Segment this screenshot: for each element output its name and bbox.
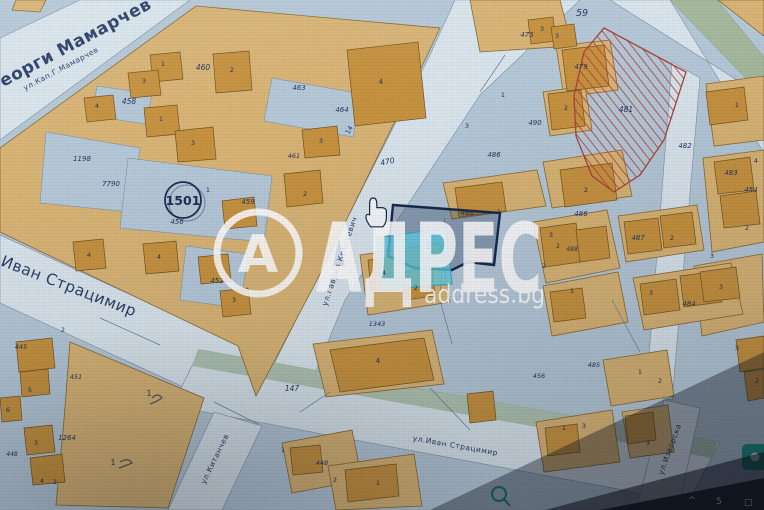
parcel-number-label: 4	[376, 357, 381, 365]
building-polygon[interactable]	[175, 127, 216, 162]
wat-logo-letter: А	[238, 225, 278, 285]
parcel-polygon[interactable]	[12, 0, 46, 12]
parcel-number-label: 448	[6, 451, 18, 458]
parcel-number-label: 5	[28, 386, 32, 394]
parcel-number-label: 2	[333, 476, 337, 484]
parcel-number-label: 460	[196, 63, 211, 72]
parcel-number-label: 484	[682, 300, 695, 308]
parcel-number-label: 1	[111, 458, 116, 467]
parcel-number-label: 1198	[73, 155, 91, 163]
building-polygon[interactable]	[540, 223, 581, 267]
wat-domain-text: address.bg	[424, 280, 545, 310]
parcel-number-label: 1	[501, 91, 505, 99]
parcel-number-label: 483	[724, 169, 737, 177]
building-polygon[interactable]	[345, 464, 399, 502]
building-polygon[interactable]	[20, 369, 50, 397]
parcel-number-label: 461	[288, 152, 300, 160]
parcel-number-label: 4	[754, 157, 758, 165]
building-polygon[interactable]	[706, 87, 748, 125]
cadastral-map-canvas[interactable]: 2 1501 458460134213119877904564591452344…	[0, 0, 764, 510]
parcel-number-label: 4	[157, 253, 161, 261]
parcel-number-label: 1	[570, 287, 574, 295]
parcel-number-label: 4	[95, 102, 99, 110]
parcel-number-label: 486	[574, 210, 588, 218]
parcel-number-label: 456	[170, 218, 184, 226]
parcel-number-label: 3	[582, 422, 586, 430]
tray-window-icon[interactable]: □	[744, 498, 753, 508]
parcel-number-label: 1	[159, 115, 163, 123]
parcel-number-label: 1264	[58, 434, 76, 442]
building-polygon[interactable]	[30, 454, 65, 485]
parcel-number-label: 488	[566, 246, 578, 253]
parcel-number-label: 448	[316, 459, 328, 467]
parcel-number-label: 459	[241, 198, 255, 206]
parcel-number-label: 1	[161, 60, 165, 68]
parcel-number-label: 3	[649, 289, 653, 297]
parcel-number-label: 7790	[102, 180, 120, 188]
parcel-number-label: 1	[281, 446, 285, 454]
parcel-number-label: 147	[285, 384, 300, 393]
parcel-number-label: 2	[556, 243, 560, 250]
parcel-number-label: 458	[122, 97, 137, 106]
parcel-number-label: 3	[710, 252, 714, 260]
parcel-number-label: 1	[735, 101, 739, 109]
parcel-number-label: 2	[303, 190, 307, 198]
parcel-number-label: 3	[735, 344, 739, 352]
parcel-number-label: 2	[61, 326, 65, 334]
parcel-number-label: 487	[631, 234, 645, 242]
parcel-number-label: 3	[549, 231, 553, 239]
parcel-number-label: 445	[15, 343, 27, 351]
parcel-number-label: 1	[638, 368, 642, 376]
parcel-number-label: 3	[142, 77, 146, 85]
building-polygon[interactable]	[720, 191, 760, 228]
parcel-number-label: 2	[542, 262, 546, 270]
building-polygon[interactable]	[0, 396, 22, 422]
parcel-number-label: 3	[232, 296, 236, 304]
parcel-number-label: 2	[670, 234, 674, 242]
parcel-number-label: 490	[528, 119, 542, 127]
parcel-number-label: 464	[335, 106, 348, 114]
parcel-number-label: 482	[678, 142, 692, 150]
parcel-number-label: 1	[206, 186, 210, 194]
parcel-number-label: 3	[540, 25, 544, 33]
building-polygon[interactable]	[284, 170, 323, 207]
tray-badge-icon[interactable]: 5	[716, 497, 722, 507]
parcel-number-label: 3	[719, 283, 723, 291]
parcel-number-label: 2	[584, 186, 588, 194]
parcel-number-label: 2	[53, 478, 57, 486]
parcel-number-label: 451	[70, 373, 82, 381]
parcel-number-label: 2	[745, 224, 749, 232]
parcel-number-label: 454	[744, 186, 757, 194]
parcel-number-label: 4	[40, 477, 44, 485]
parcel-number-label: 485	[588, 361, 600, 369]
parcel-polygon[interactable]	[603, 350, 674, 406]
building-polygon[interactable]	[467, 391, 496, 423]
building-polygon[interactable]	[84, 95, 116, 122]
building-polygon[interactable]	[640, 279, 680, 315]
building-polygon[interactable]	[576, 226, 610, 262]
parcel-number-label: 1	[376, 479, 380, 487]
tray-chevron-icon[interactable]: ^	[688, 496, 696, 506]
parcel-number-label: 3	[34, 439, 38, 447]
parcel-number-label: 2	[564, 104, 568, 112]
parcel-number-label: 6	[6, 406, 10, 414]
building-polygon[interactable]	[347, 42, 426, 126]
parcel-number-label: 3	[319, 137, 323, 145]
parcel-number-label: 479	[574, 63, 588, 71]
building-polygon[interactable]	[660, 212, 696, 248]
parcel-number-label: 2	[230, 66, 234, 74]
parcel-number-label: 3	[555, 32, 559, 40]
parcel-number-label: 59	[576, 8, 588, 19]
map-photo-stage: 2 1501 458460134213119877904564591452344…	[0, 0, 764, 510]
parcel-number-label: 456	[533, 372, 545, 380]
parcel-number-label: 486	[487, 151, 501, 159]
parcel-number-label: 1	[147, 389, 152, 398]
parcel-number-label: 475	[520, 31, 534, 39]
parcel-number-label: 481	[619, 105, 633, 114]
parcel-number-label: 3	[191, 139, 195, 147]
parcel-number-label: 1	[562, 424, 566, 432]
parcel-number-label: 3	[465, 122, 469, 130]
parcel-number-label: 2	[658, 377, 662, 385]
parcel-number-label: 463	[292, 84, 305, 92]
parcel-number-label: 1343	[369, 320, 386, 328]
building-polygon[interactable]	[24, 425, 55, 455]
parcel-number-label: 4	[379, 78, 384, 86]
building-polygon[interactable]	[550, 288, 586, 322]
quarter-number: 1501	[166, 193, 201, 208]
parcel-number-label: 4	[87, 251, 91, 259]
